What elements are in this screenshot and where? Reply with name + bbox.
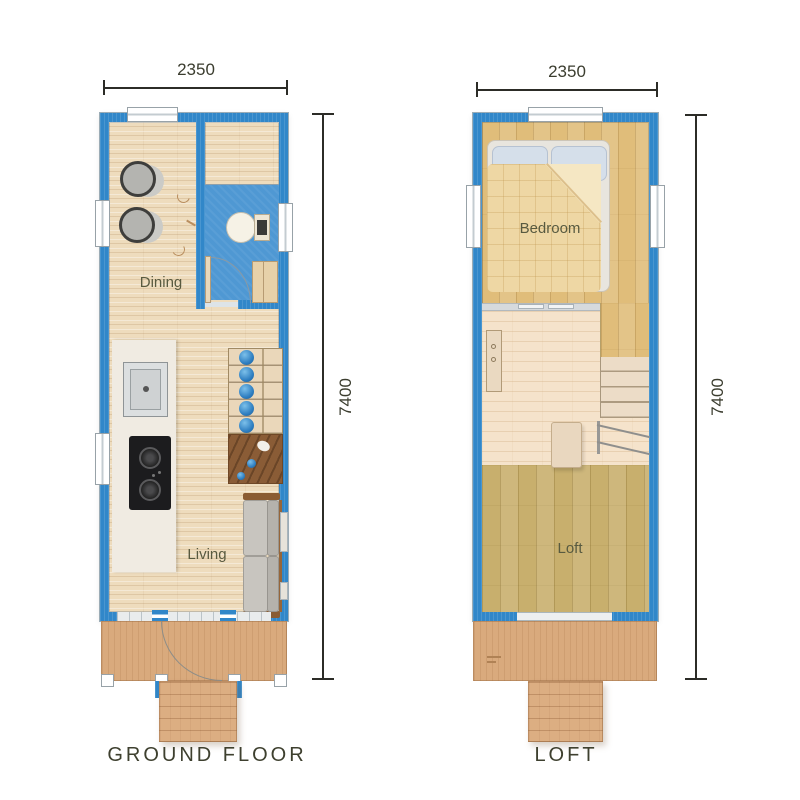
partition-window bbox=[518, 304, 544, 309]
cabinet-knob bbox=[491, 357, 496, 362]
deck-steps bbox=[528, 681, 603, 742]
deck-plank-mark bbox=[487, 656, 501, 658]
loft-floor bbox=[482, 465, 649, 612]
loft-width-label: 2350 bbox=[527, 62, 607, 84]
window bbox=[466, 185, 481, 248]
deck-door-opening bbox=[517, 612, 612, 621]
loft-title: LOFT bbox=[446, 744, 686, 772]
deck-plank-mark bbox=[487, 661, 496, 663]
dimension-tick bbox=[656, 82, 658, 97]
rear-deck bbox=[473, 621, 657, 681]
dimension-cap bbox=[685, 678, 707, 680]
window bbox=[528, 107, 603, 122]
stool bbox=[551, 422, 582, 468]
loft-room-label: Loft bbox=[530, 540, 610, 562]
floor-plan-canvas: 2350 7400 bbox=[0, 0, 800, 800]
bedroom-label: Bedroom bbox=[505, 220, 595, 242]
dimension-line bbox=[695, 115, 697, 680]
loft-height-label: 7400 bbox=[708, 357, 730, 437]
dimension-cap bbox=[685, 114, 707, 116]
window bbox=[650, 185, 665, 248]
loft-stair-treads bbox=[600, 357, 649, 418]
stair-top-landing bbox=[600, 303, 649, 357]
partition-window bbox=[548, 304, 574, 309]
dimension-line bbox=[477, 89, 657, 91]
cabinet-knob bbox=[491, 344, 496, 349]
loft-plan: 2350 7400 bbox=[0, 0, 800, 800]
dimension-tick bbox=[476, 82, 478, 97]
